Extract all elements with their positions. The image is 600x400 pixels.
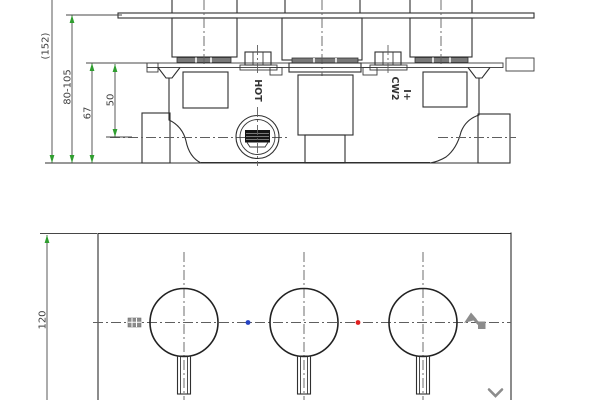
dim-arrow <box>113 64 118 72</box>
mounting-bar <box>118 13 534 18</box>
bracket-tab-right <box>506 58 534 71</box>
cad-drawing-page: HOT CW2 I+ (152) 80-105 67 50 <box>0 0 600 400</box>
inlet-port-right <box>423 72 467 107</box>
cartridge-left <box>172 0 237 66</box>
dim-arrow <box>90 155 95 163</box>
cw2-label: CW2 <box>389 76 400 100</box>
top-view: HOT CW2 I+ (152) 80-105 67 50 <box>41 0 535 166</box>
dim-67-text: 67 <box>83 107 94 120</box>
annotation-flag-icon <box>464 313 486 330</box>
dim-arrow <box>50 155 55 163</box>
dim-arrow <box>90 63 95 71</box>
trim-plate-outline <box>98 233 511 400</box>
knob-middle <box>270 252 338 400</box>
dim-50-text: 50 <box>106 94 117 107</box>
cartridge-middle <box>282 0 362 76</box>
valve-body-outline <box>147 63 503 163</box>
dim-120-text: 120 <box>38 310 49 329</box>
chevron-down-icon[interactable] <box>489 390 502 397</box>
escutcheon-strip <box>147 63 503 68</box>
dim-arrow <box>45 235 50 243</box>
cw2-mark-label: I+ <box>401 89 412 101</box>
wall-anchor-left <box>158 68 180 79</box>
dim-80-105-text: 80-105 <box>63 69 74 104</box>
hex-screw-right <box>370 45 407 76</box>
front-outlet-port <box>236 107 279 166</box>
inlet-port-middle <box>298 75 353 135</box>
blue-point-marker <box>246 320 251 325</box>
inlet-port-left <box>183 72 228 108</box>
hot-label: HOT <box>252 79 263 102</box>
inlet-port-middle-lower <box>305 135 345 163</box>
dim-arrow <box>70 15 75 23</box>
drawing-canvas: HOT CW2 I+ (152) 80-105 67 50 <box>0 0 600 400</box>
dim-152-text: (152) <box>41 32 52 59</box>
bottom-view: 120 <box>38 233 512 400</box>
knob-left <box>150 252 218 400</box>
knob-right <box>389 252 457 400</box>
cartridge-right <box>410 0 472 66</box>
wall-anchor-right <box>468 68 490 79</box>
dimension-50: 50 <box>106 64 133 137</box>
dim-arrow <box>70 155 75 163</box>
grip-icon <box>128 318 141 327</box>
red-point-marker <box>356 320 361 325</box>
side-elbow-right <box>438 114 516 163</box>
dimension-152: (152) <box>41 0 55 163</box>
dimension-120: 120 <box>38 234 98 400</box>
dim-arrow <box>113 129 118 137</box>
hex-screw-left <box>240 45 277 76</box>
dimension-67: 67 <box>83 63 151 163</box>
